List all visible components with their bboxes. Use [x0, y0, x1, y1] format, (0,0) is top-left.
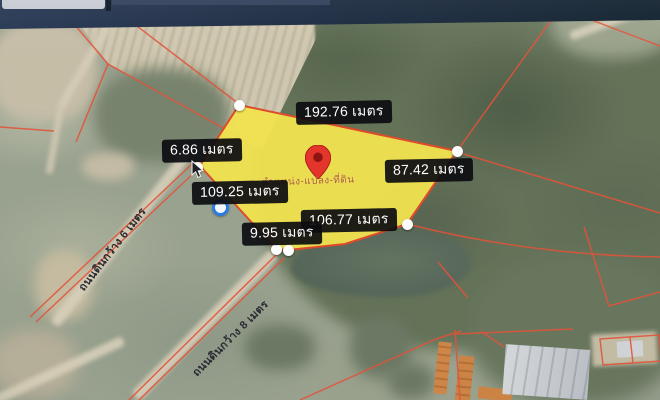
measurement-label-left: 6.86 เมตร	[162, 138, 242, 162]
screen-photo: ตำแหน่ง-แปลง-ที่ดิน 192.76 เมตร 6.86 เมต…	[0, 0, 660, 400]
vertex-handle[interactable]	[402, 219, 413, 230]
vertex-handle[interactable]	[283, 245, 294, 256]
mouse-cursor-icon	[191, 160, 205, 180]
vertex-handle[interactable]	[452, 146, 463, 157]
toolbar-strip	[112, 0, 330, 5]
vertex-handle[interactable]	[271, 244, 282, 255]
map-overlay	[0, 0, 660, 400]
tab-divider	[106, 0, 111, 11]
measurement-label-right: 87.42 เมตร	[385, 158, 473, 182]
measurement-label-top: 192.76 เมตร	[296, 100, 392, 124]
measurement-label-bottom-small: 9.95 เมตร	[242, 221, 322, 245]
measurement-label-lower-left: 109.25 เมตร	[192, 180, 288, 204]
vertex-handle[interactable]	[234, 100, 245, 111]
browser-tab-remnant	[2, 0, 105, 9]
